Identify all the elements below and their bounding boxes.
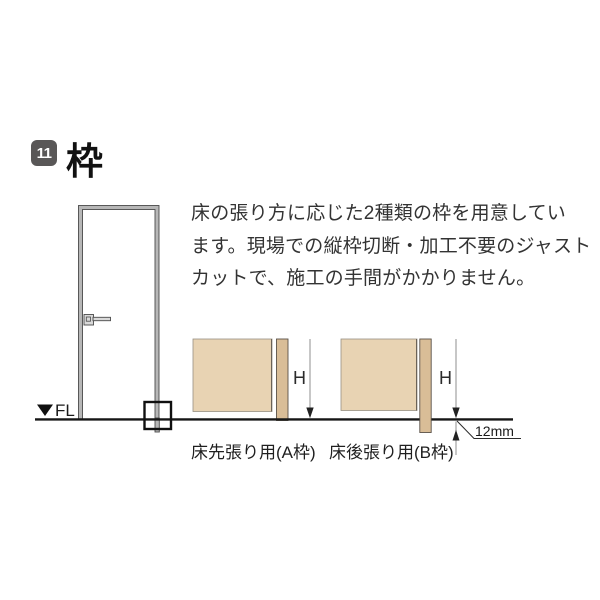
fl-triangle-icon xyxy=(37,405,53,417)
catalog-page: 11 枠 床の張り方に応じた2種類の枠を用意してい ます。現場での縦枠切断・加工… xyxy=(0,0,600,600)
offset-12mm-label: 12mm xyxy=(475,423,514,439)
door-handle-lever xyxy=(93,317,111,320)
diagram-b-wall xyxy=(341,339,417,411)
door-handle-plate xyxy=(84,315,94,326)
illustration-canvas xyxy=(0,0,600,600)
diagram-b-height-label: H xyxy=(439,368,452,389)
diagram-a-wall xyxy=(193,339,272,412)
diagram-a-caption: 床先張り用(A枠) xyxy=(191,438,316,463)
door-elevation xyxy=(79,206,160,433)
diagram-a-arrow-down xyxy=(306,408,313,419)
diagram-a-frame-strip xyxy=(277,339,289,421)
fl-label: FL xyxy=(55,401,75,421)
diagram-b-arrow-down xyxy=(452,408,459,419)
diagram-b-caption: 床後張り用(B枠) xyxy=(329,438,454,463)
diagram-b-frame-strip xyxy=(420,339,431,433)
diagram-a-height-label: H xyxy=(293,368,306,389)
